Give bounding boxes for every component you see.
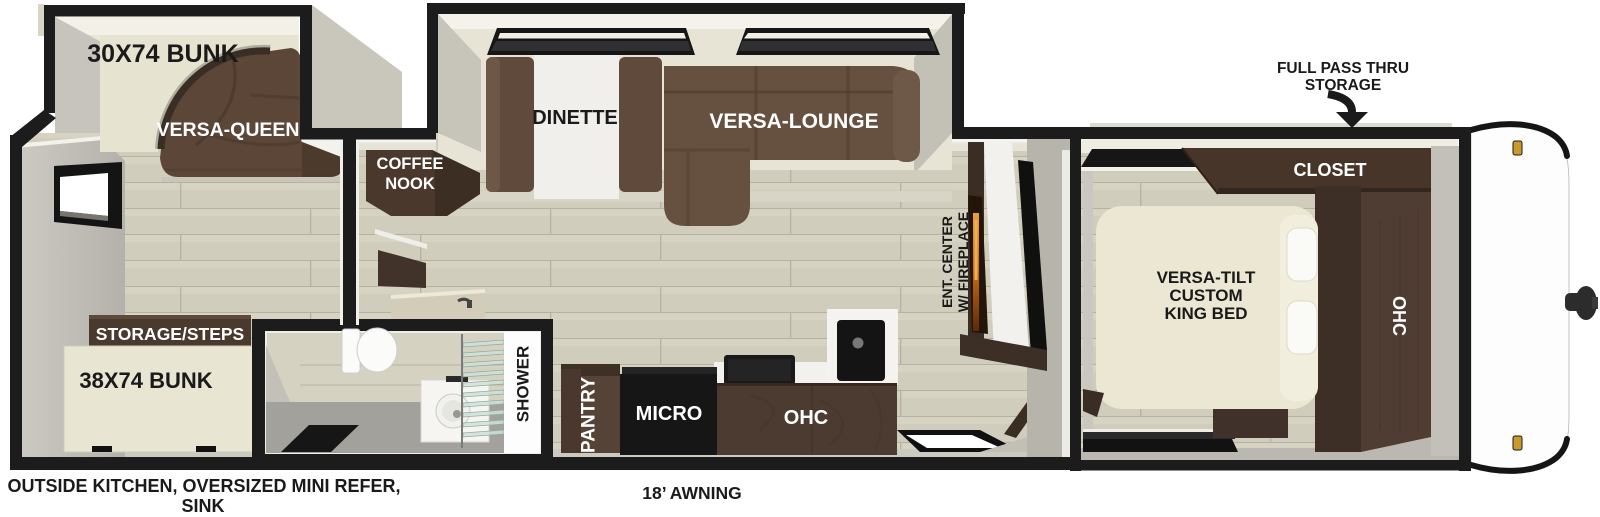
svg-text:PANTRY: PANTRY — [579, 377, 600, 453]
svg-text:CLOSET: CLOSET — [1293, 160, 1366, 180]
svg-text:VERSA-TILT: VERSA-TILT — [1157, 268, 1256, 287]
svg-text:NOOK: NOOK — [385, 175, 435, 193]
svg-text:W/ FIREPLACE: W/ FIREPLACE — [955, 212, 971, 312]
svg-text:ENT. CENTER: ENT. CENTER — [939, 216, 955, 308]
svg-text:18’ AWNING: 18’ AWNING — [642, 483, 742, 503]
svg-text:OHC: OHC — [784, 407, 828, 429]
svg-text:STORAGE/STEPS: STORAGE/STEPS — [96, 324, 244, 344]
svg-text:FULL PASS THRU: FULL PASS THRU — [1277, 60, 1409, 77]
svg-text:KING BED: KING BED — [1164, 304, 1247, 323]
svg-text:DINETTE: DINETTE — [532, 107, 618, 129]
svg-text:STORAGE: STORAGE — [1305, 77, 1381, 94]
svg-text:SHOWER: SHOWER — [514, 346, 533, 423]
svg-text:COFFEE: COFFEE — [377, 155, 444, 173]
svg-text:30X74 BUNK: 30X74 BUNK — [87, 40, 238, 68]
svg-text:OHC: OHC — [1389, 296, 1409, 336]
svg-text:OUTSIDE KITCHEN, OVERSIZED MIN: OUTSIDE KITCHEN, OVERSIZED MINI REFER, — [7, 476, 400, 496]
svg-text:VERSA-QUEEN: VERSA-QUEEN — [156, 119, 299, 141]
svg-text:MICRO: MICRO — [636, 403, 703, 425]
svg-text:SINK: SINK — [181, 496, 224, 516]
svg-text:38X74 BUNK: 38X74 BUNK — [79, 368, 212, 393]
svg-text:VERSA-LOUNGE: VERSA-LOUNGE — [709, 110, 878, 133]
svg-text:CUSTOM: CUSTOM — [1169, 286, 1242, 305]
